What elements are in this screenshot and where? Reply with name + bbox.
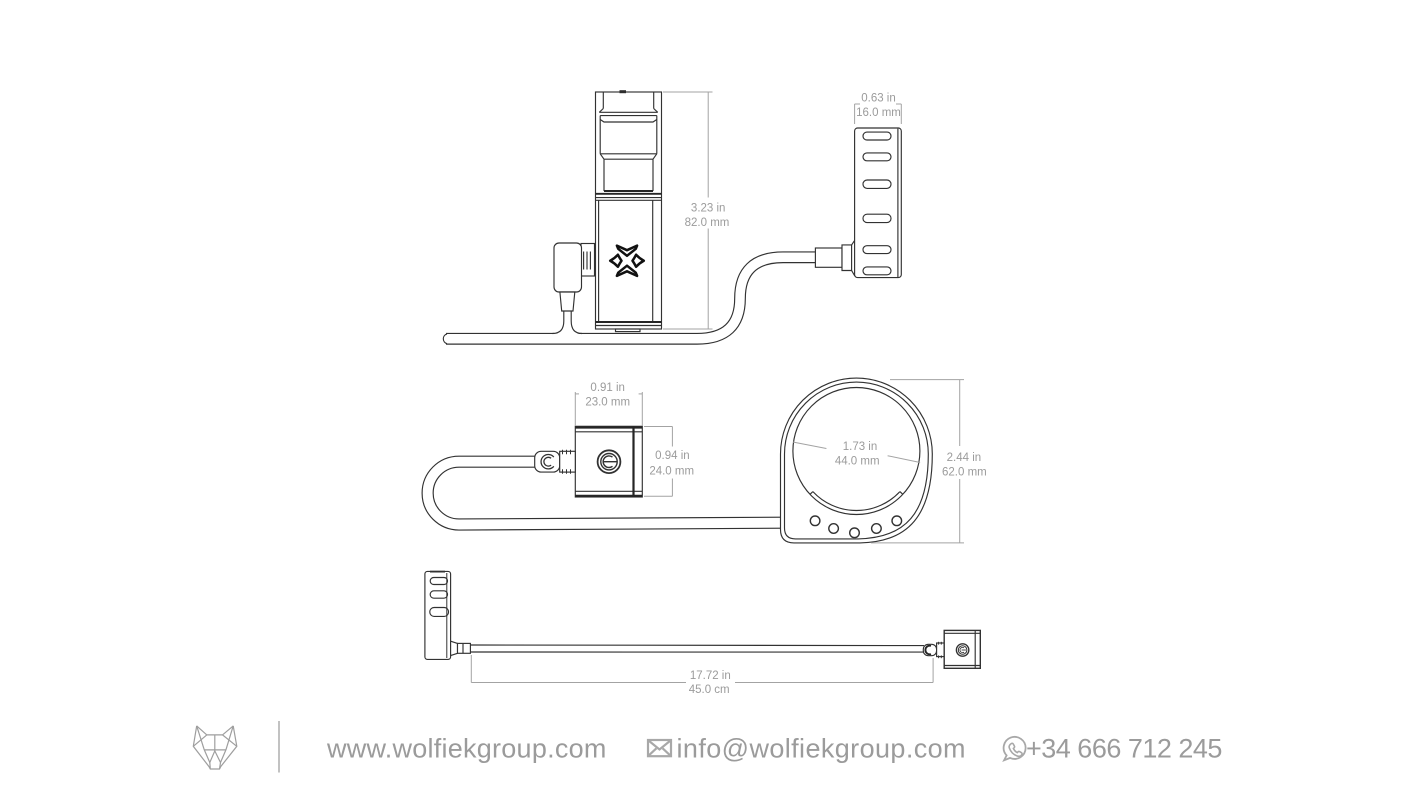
svg-text:0.94 in: 0.94 in <box>655 450 690 462</box>
svg-text:0.63 in: 0.63 in <box>861 93 896 105</box>
svg-text:23.0 mm: 23.0 mm <box>585 396 630 408</box>
svg-text:1.73 in: 1.73 in <box>843 441 878 453</box>
svg-text:44.0 mm: 44.0 mm <box>835 456 880 468</box>
svg-text:www.wolfiekgroup.com: www.wolfiekgroup.com <box>326 734 607 764</box>
svg-text:17.72 in: 17.72 in <box>690 670 731 682</box>
svg-text:info@wolfiekgroup.com: info@wolfiekgroup.com <box>677 734 966 764</box>
svg-text:24.0 mm: 24.0 mm <box>649 466 694 478</box>
svg-text:62.0 mm: 62.0 mm <box>942 466 987 478</box>
svg-text:45.0 cm: 45.0 cm <box>689 684 730 696</box>
svg-text:82.0 mm: 82.0 mm <box>685 217 730 229</box>
svg-text:+34 666 712 245: +34 666 712 245 <box>1026 734 1222 764</box>
svg-text:2.44 in: 2.44 in <box>947 452 982 464</box>
svg-text:3.23 in: 3.23 in <box>691 202 726 214</box>
svg-text:0.91 in: 0.91 in <box>590 382 625 394</box>
svg-text:16.0 mm: 16.0 mm <box>856 107 901 119</box>
